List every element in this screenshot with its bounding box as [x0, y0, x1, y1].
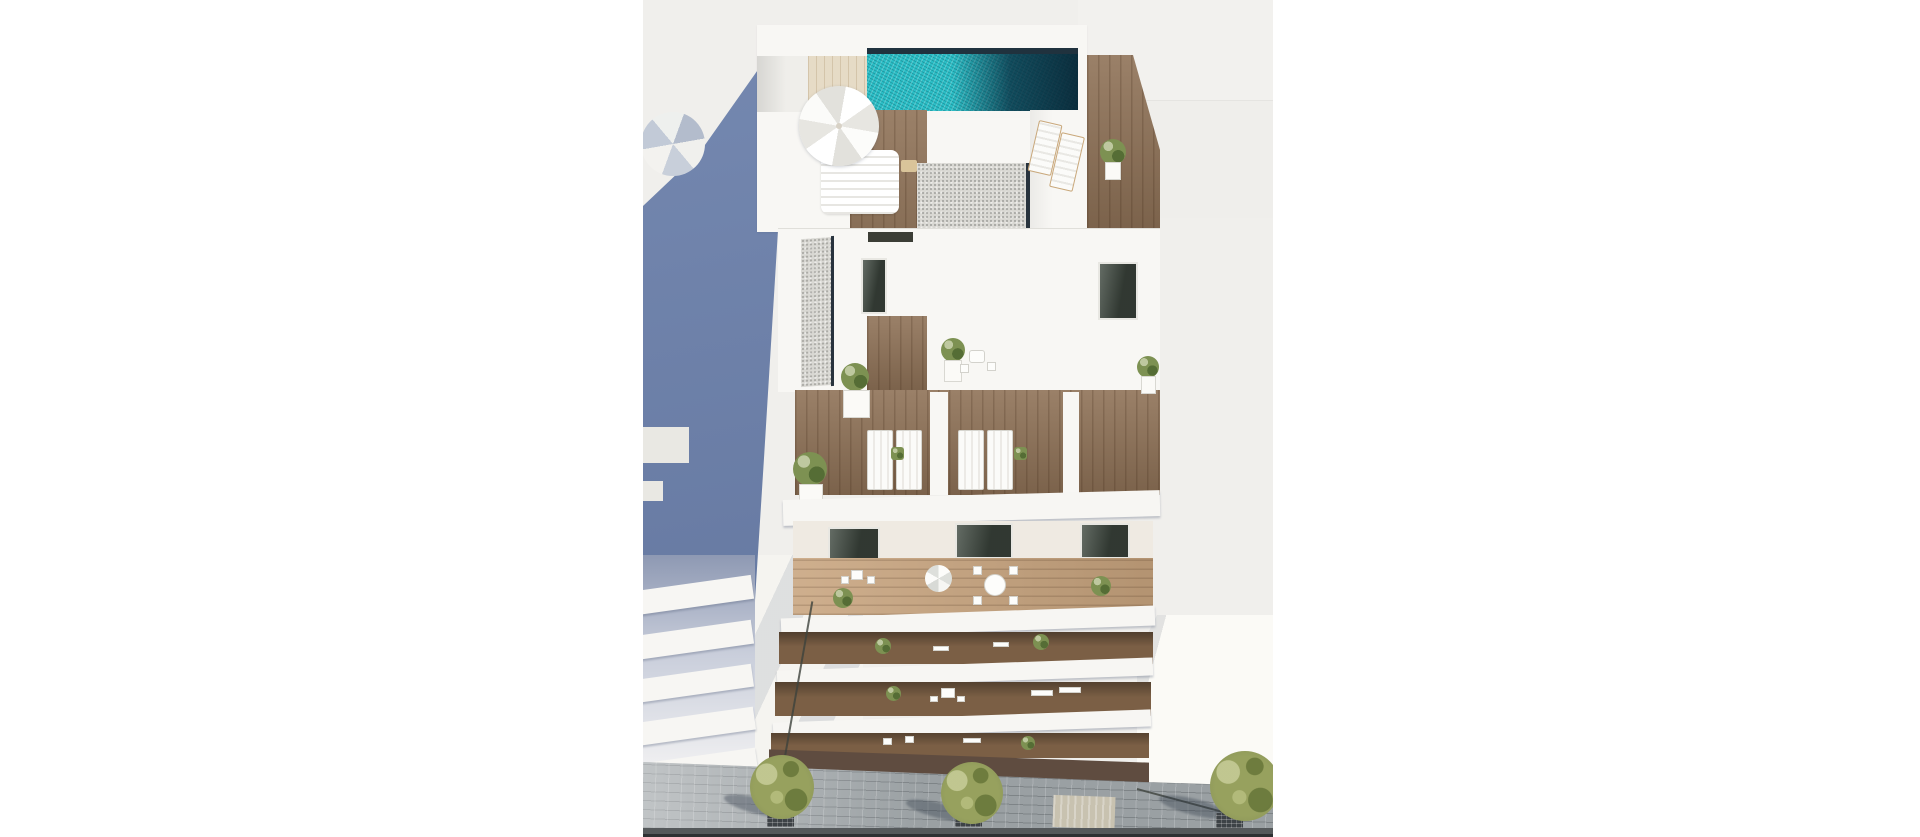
plant-pot	[1105, 162, 1121, 180]
balcony-chair	[883, 738, 892, 745]
balcony-lounger	[1031, 690, 1053, 696]
balcony-plant	[1021, 736, 1035, 750]
courtyard-beam	[868, 232, 913, 242]
shaded-parasol	[643, 112, 705, 176]
glass-door	[955, 523, 1013, 559]
gravel-edge-line	[831, 236, 834, 386]
balcony-lounger	[1059, 687, 1081, 693]
dining-chair	[1009, 566, 1018, 575]
cube-plant	[1014, 447, 1027, 460]
sunlit-slab-notch	[643, 481, 663, 501]
street-tree	[941, 762, 1003, 824]
terrace-planter-bush	[941, 338, 965, 362]
balcony-chair	[957, 696, 965, 702]
cube-plant	[891, 447, 904, 460]
street-tree	[750, 755, 814, 819]
roof-bulkhead	[757, 56, 810, 112]
bistro-chair	[867, 576, 875, 584]
right-terrace-opening	[1098, 262, 1138, 320]
gravel-roof-left	[801, 237, 833, 387]
rooftop-pool	[867, 54, 1078, 111]
balcony-table	[941, 688, 955, 698]
balcony-furniture	[933, 646, 949, 651]
terrace-planter-bush	[841, 363, 869, 391]
balcony-furniture	[993, 642, 1009, 647]
balcony-furniture	[963, 738, 981, 743]
parasol-pole-cap	[836, 123, 842, 129]
sun-lounger	[867, 430, 893, 490]
sun-lounger	[958, 430, 984, 490]
balcony-parasol	[925, 565, 952, 592]
bistro-table	[851, 570, 863, 580]
side-table	[901, 160, 917, 172]
terrace-planter	[843, 390, 870, 418]
sun-lounger	[987, 430, 1013, 490]
sun-lounger	[896, 430, 922, 490]
terrace-chair	[987, 362, 996, 371]
potted-tree	[793, 452, 827, 486]
tactile-paving-strip	[1052, 795, 1115, 829]
terrace-chair	[960, 364, 969, 373]
aerial-render-photo	[643, 0, 1273, 837]
balcony-chair	[905, 736, 914, 743]
round-table	[984, 574, 1006, 596]
street-tree	[1210, 751, 1273, 821]
balcony-plant	[875, 638, 891, 654]
dining-chair	[1009, 596, 1018, 605]
balcony-plant	[886, 686, 901, 701]
glass-door	[1080, 523, 1130, 559]
balcony-chair	[930, 696, 938, 702]
terrace-divider-wall	[930, 392, 948, 495]
courtyard-door	[861, 258, 887, 314]
balcony-plant	[1091, 576, 1111, 596]
bistro-chair	[841, 576, 849, 584]
dining-chair	[973, 596, 982, 605]
terrace-planter-bush	[1137, 356, 1159, 378]
terrace-divider-wall	[1063, 392, 1079, 495]
dining-chair	[973, 566, 982, 575]
sunlit-slab-notch	[643, 427, 689, 463]
courtyard-deck	[867, 316, 927, 392]
balcony-plant	[833, 588, 853, 608]
terrace-table	[969, 350, 985, 363]
terrace-planter	[1141, 376, 1156, 394]
balcony-plant	[1033, 634, 1049, 650]
